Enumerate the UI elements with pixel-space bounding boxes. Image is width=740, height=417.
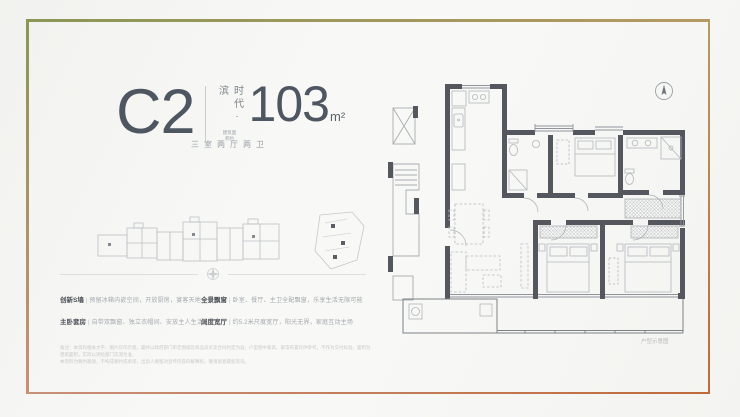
area-figure: 103 m² bbox=[249, 82, 346, 126]
header-divider bbox=[205, 86, 206, 141]
divider-line-left bbox=[60, 274, 198, 275]
feature-item: 全景飘窗 | 卧室、餐厅、主卫全配飘窗，乐享生活无限可能 bbox=[201, 294, 374, 304]
siteplan-thumbnail bbox=[311, 211, 367, 271]
frame-left-edge bbox=[26, 19, 29, 394]
feature-desc: 自带双飘窗、独立衣帽间、安放主人生活品味 bbox=[92, 317, 201, 326]
disclaimer-line2: 本资料为要约邀请，不构成要约或承诺，出卖人保留对宣传内容的解释权，敬请留意最新资… bbox=[60, 358, 372, 365]
frame-right-edge bbox=[708, 19, 711, 394]
walls bbox=[445, 84, 685, 299]
building-markers bbox=[331, 224, 345, 259]
feature-desc: 卧室、餐厅、主卫全配飘窗，乐享生活无限可能 bbox=[233, 295, 363, 304]
feature-label: 创新S墙 bbox=[60, 294, 84, 304]
unit-code: C2 bbox=[116, 82, 195, 144]
windows bbox=[450, 86, 685, 298]
balcony bbox=[403, 299, 683, 333]
area-unit: m² bbox=[330, 109, 345, 124]
layout-tagline: 三室两厅两卫 bbox=[191, 139, 269, 150]
divider-line-right bbox=[228, 274, 366, 275]
feature-separator: | bbox=[88, 320, 90, 326]
feature-item: 创新S墙 | 预留冰箱内嵌空间，开放厨房，宴客天地更舒适 bbox=[60, 294, 201, 304]
unit-header: C2 时代·滨 建筑面积约 103 m² bbox=[116, 82, 345, 144]
feature-desc: 约5.2米尺度宽厅，阳光无界，家庭互动主场 bbox=[233, 317, 354, 326]
divider-ornament-icon bbox=[205, 266, 221, 282]
floor-plan: 户型示意图 bbox=[385, 80, 695, 348]
building-keyplan bbox=[94, 215, 286, 269]
master-bedroom-furniture bbox=[609, 226, 679, 292]
utility-fixtures bbox=[409, 304, 492, 319]
area-value: 103 bbox=[249, 82, 329, 126]
feature-list: 创新S墙 | 预留冰箱内嵌空间，开放厨房，宴客天地更舒适 全景飘窗 | 卧室、餐… bbox=[60, 294, 374, 326]
guest-bath-fixtures bbox=[509, 139, 540, 190]
section-divider bbox=[60, 266, 366, 282]
living-dining-furniture bbox=[449, 204, 528, 292]
feature-label: 主卧套房 bbox=[60, 316, 86, 326]
disclaimer-line1: 备注：本资料相关文字、图片仅作示意，最终以政府部门审定图纸及商品房买卖合同约定为… bbox=[60, 344, 372, 358]
kitchen-fixtures bbox=[452, 91, 489, 190]
feature-separator: | bbox=[86, 298, 88, 304]
master-bath-fixtures bbox=[625, 137, 681, 185]
walk-in-closet bbox=[625, 199, 681, 218]
poster-canvas: C2 时代·滨 建筑面积约 103 m² 三室两厅两卫 bbox=[0, 0, 740, 417]
disclaimer-block: 备注：本资料相关文字、图片仅作示意，最终以政府部门审定图纸及商品房买卖合同约定为… bbox=[60, 344, 372, 365]
feature-label: 全景飘窗 bbox=[201, 294, 227, 304]
feature-item: 主卧套房 | 自带双飘窗、独立衣帽间、安放主人生活品味 bbox=[60, 316, 201, 326]
feature-separator: | bbox=[229, 320, 231, 326]
frame-bottom-edge bbox=[26, 392, 710, 395]
feature-desc: 预留冰箱内嵌空间，开放厨房，宴客天地更舒适 bbox=[89, 295, 201, 304]
plan-caption: 户型示意图 bbox=[641, 337, 669, 345]
bedroom3-furniture bbox=[557, 138, 615, 176]
brand-column: 时代·滨 建筑面积约 bbox=[215, 85, 245, 142]
feature-separator: | bbox=[229, 298, 231, 304]
brand-vertical-text: 时代·滨 bbox=[215, 85, 245, 127]
north-compass-icon bbox=[656, 83, 673, 100]
feature-label: 阔度宽厅 bbox=[201, 316, 227, 326]
frame-top-edge bbox=[26, 19, 710, 22]
feature-item: 阔度宽厅 | 约5.2米尺度宽厅，阳光无界，家庭互动主场 bbox=[201, 316, 374, 326]
bedroom2-furniture bbox=[539, 226, 597, 292]
